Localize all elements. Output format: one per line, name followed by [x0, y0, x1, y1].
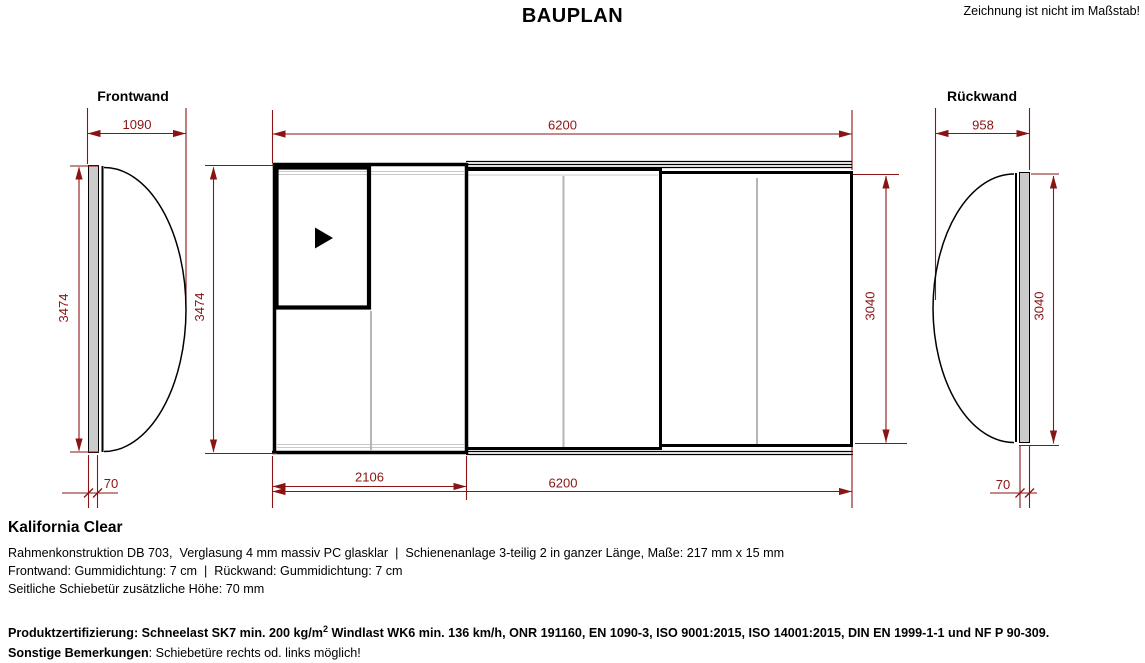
- rueckwand-width-value: 958: [972, 118, 994, 133]
- frontwand-height-value: 3474: [56, 294, 71, 323]
- rueckwand-label: Rückwand: [947, 88, 1017, 104]
- rueckwand-height-value: 3040: [1032, 292, 1047, 321]
- main-left-value: 3474: [192, 293, 207, 322]
- rueckwand-seal-dimension: 70: [990, 445, 1037, 508]
- rueckwand-seal-value: 70: [996, 477, 1010, 492]
- spec-line-seals: Frontwand: Gummidichtung: 7 cm | Rückwan…: [8, 562, 1143, 580]
- main-right-dimension: 3040: [853, 175, 907, 444]
- construction-drawing: Frontwand 1090 3474: [0, 0, 1145, 516]
- main-right-value: 3040: [863, 292, 878, 321]
- remarks-line: Sonstige Bemerkungen: Schiebetüre rechts…: [8, 643, 1143, 663]
- sliding-door: [277, 168, 370, 308]
- frontwand-width-value: 1090: [123, 117, 152, 132]
- product-name: Kalifornia Clear: [8, 519, 1143, 537]
- main-bottom-dimensions: 2106 6200: [273, 447, 853, 508]
- main-bottom-value: 6200: [549, 476, 578, 491]
- main-top-value: 6200: [548, 118, 577, 133]
- frontwand-view: Frontwand 1090 3474: [56, 88, 186, 508]
- specifications-block: Kalifornia Clear Rahmenkonstruktion DB 7…: [8, 519, 1143, 663]
- remarks-label: Sonstige Bemerkungen: [8, 646, 149, 660]
- rueckwand-panel-strip: [1020, 173, 1030, 443]
- certification-label: Produktzertifizierung:: [8, 626, 138, 640]
- frontwand-arc: [104, 168, 186, 452]
- frontwand-seal-dimension: 70: [62, 455, 118, 508]
- door-direction-arrow-icon: [315, 228, 333, 249]
- main-door-width-value: 2106: [355, 470, 384, 485]
- spec-line-construction: Rahmenkonstruktion DB 703, Verglasung 4 …: [8, 544, 1143, 562]
- spec-line-door-height: Seitliche Schiebetür zusätzliche Höhe: 7…: [8, 580, 1143, 598]
- main-left-dimension: 3474: [192, 166, 277, 454]
- frontwand-label: Frontwand: [97, 88, 169, 104]
- certification-line: Produktzertifizierung: Schneelast SK7 mi…: [8, 619, 1143, 643]
- frontwand-panel-strip: [89, 166, 99, 453]
- rueckwand-arc: [933, 174, 1014, 443]
- frontwand-seal-value: 70: [104, 476, 118, 491]
- rueckwand-view: Rückwand 958 3040: [933, 88, 1059, 508]
- main-side-view: 6200: [192, 110, 907, 508]
